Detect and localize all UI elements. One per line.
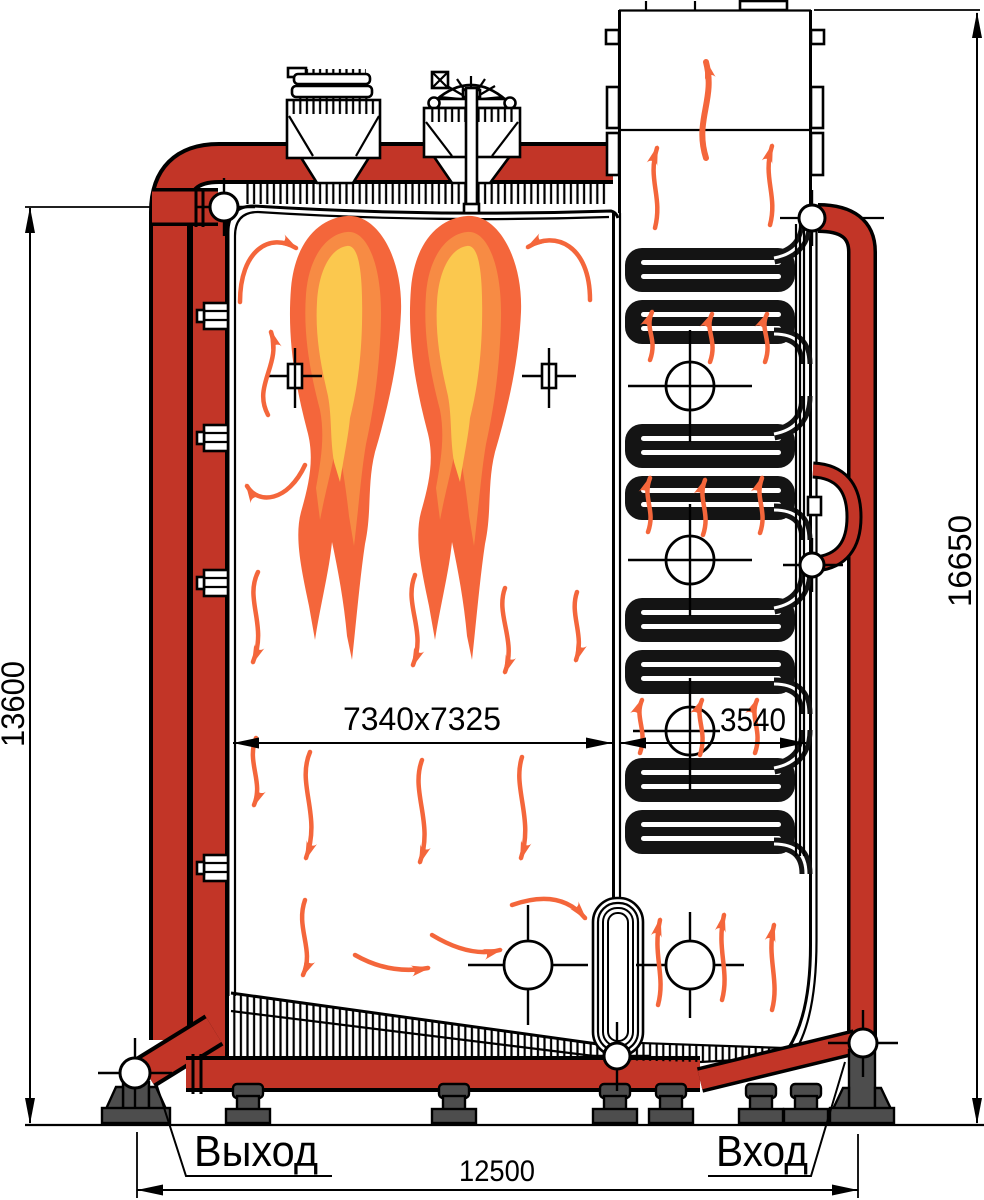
inlet-label: Вход <box>716 1127 808 1176</box>
dim-height-left: 13600 <box>0 661 31 747</box>
burner-axis-mark-right <box>522 348 576 408</box>
coil-bank <box>625 248 795 292</box>
coil-bank <box>625 650 795 694</box>
dimension-13600: 13600 <box>0 207 35 1124</box>
dimension-16650: 16650 <box>942 12 982 1124</box>
burner-assembly-left <box>287 68 380 158</box>
coil-bank <box>625 810 795 854</box>
coil-bank <box>625 598 795 642</box>
dim-overall-length: 12500 <box>459 1155 535 1188</box>
flame-left <box>290 216 401 660</box>
coil-bank <box>625 424 795 468</box>
outlet-label: Выход <box>194 1127 318 1176</box>
dimension-furnace-size: 7340x7325 <box>233 701 612 749</box>
foot <box>649 1084 693 1123</box>
ceiling-fin-comb <box>246 183 606 204</box>
furnace-floor <box>231 993 812 1062</box>
foot <box>739 1084 783 1123</box>
foot <box>784 1084 828 1123</box>
flue-duct <box>606 1 824 1056</box>
dim-convective-width: 3540 <box>720 702 786 738</box>
dim-height-right: 16650 <box>942 515 978 607</box>
boiler-sectional-drawing: 13600 16650 7340x7325 3540 12500 Выход В… <box>0 0 984 1200</box>
foot <box>593 1084 637 1123</box>
foot <box>226 1084 270 1123</box>
furnace-walls <box>197 183 618 996</box>
foot <box>432 1084 476 1123</box>
water-piping-right <box>700 218 884 1080</box>
coil-bank <box>625 758 795 802</box>
dim-furnace-size: 7340x7325 <box>343 701 501 737</box>
